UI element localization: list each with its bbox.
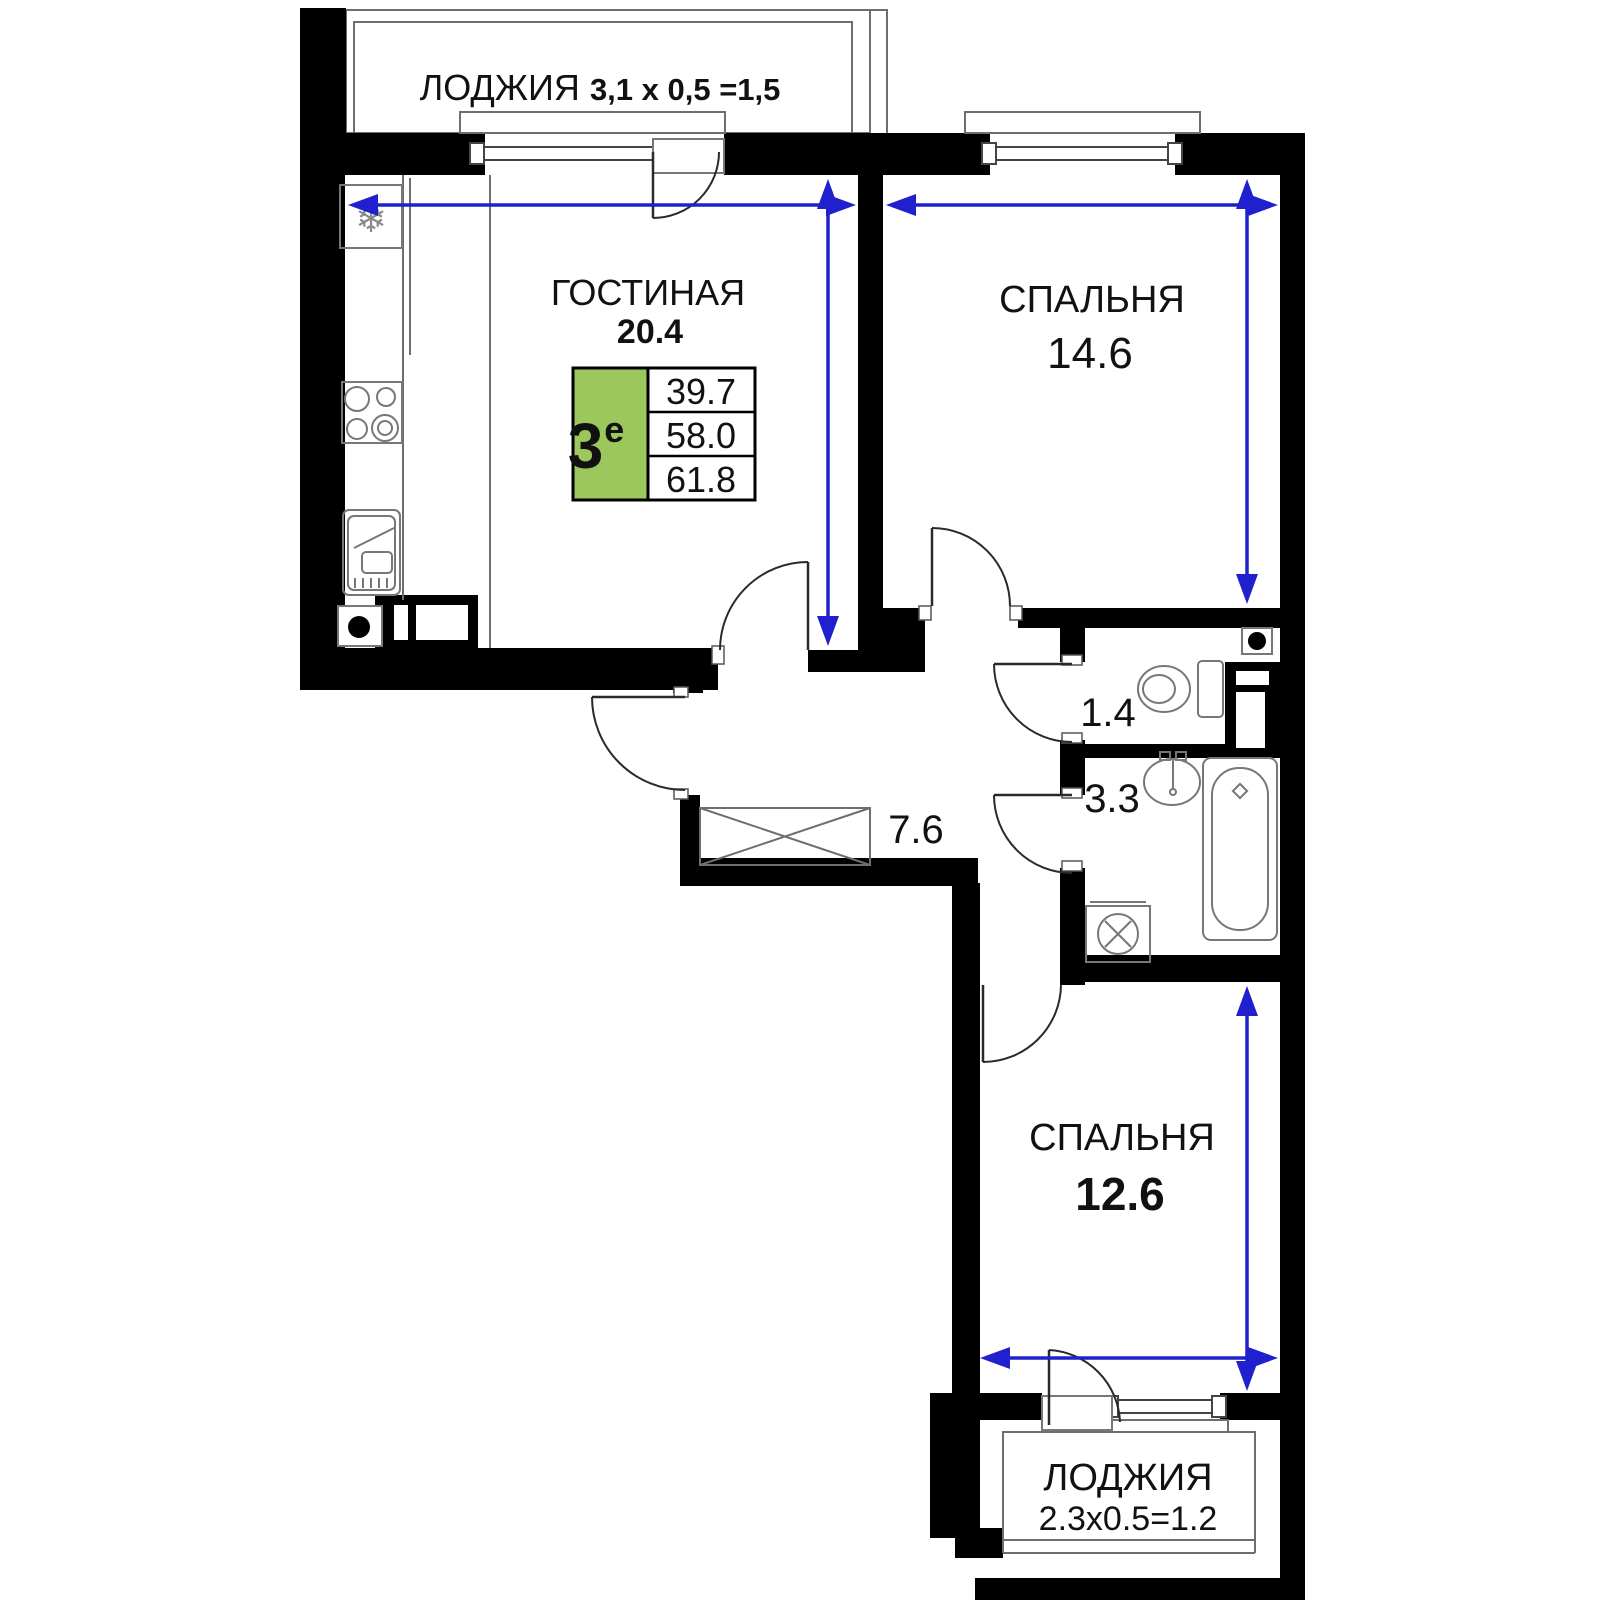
living-room-area: 20.4 xyxy=(617,313,683,351)
wc-duct-shaft xyxy=(1225,662,1280,755)
wc-door xyxy=(994,655,1082,743)
bath-area: 3.3 xyxy=(1084,777,1140,821)
dimension-arrow-bedroom1-depth xyxy=(1236,179,1258,604)
wc-area: 1.4 xyxy=(1080,691,1136,735)
bedroom1-label: СПАЛЬНЯ xyxy=(999,279,1185,321)
bathtub-icon xyxy=(1203,758,1277,940)
floor-plan-canvas: ❄ xyxy=(0,0,1600,1600)
toilet-icon xyxy=(1138,661,1223,717)
wc-vent-icon xyxy=(1242,628,1272,654)
kitchen-vent-icon xyxy=(338,606,382,646)
badge-area-total: 61.8 xyxy=(666,459,736,500)
badge-area-main: 58.0 xyxy=(666,415,736,456)
living-room-label: ГОСТИНАЯ xyxy=(551,272,745,313)
floor-plan: ❄ xyxy=(0,0,1600,1600)
dimension-arrow-bedroom1-width xyxy=(886,194,1278,216)
dimension-arrow-living-width xyxy=(348,194,856,216)
kitchen-duct-shaft xyxy=(375,595,478,648)
bath-door xyxy=(994,788,1082,873)
hall-area: 7.6 xyxy=(888,808,944,852)
bedroom1-door xyxy=(919,528,1022,620)
dimension-arrow-bedroom2-depth xyxy=(1236,986,1258,1391)
bedroom2-balcony-door xyxy=(1042,1350,1120,1430)
loggia-top-label: ЛОДЖИЯ3,1 х 0,5 =1,5 xyxy=(420,67,781,108)
badge-area-living: 39.7 xyxy=(666,371,736,412)
loggia-bottom-dims: 2.3х0.5=1.2 xyxy=(1039,1500,1218,1538)
room-labels: ЛОДЖИЯ3,1 х 0,5 =1,5 ГОСТИНАЯ 20.4 СПАЛЬ… xyxy=(420,67,1218,1538)
dimension-arrow-living-depth xyxy=(817,179,839,646)
bedroom1-area: 14.6 xyxy=(1047,329,1133,378)
bedroom1-window xyxy=(965,112,1200,164)
kitchen-counter xyxy=(403,175,490,648)
living-room-door xyxy=(712,562,808,664)
kitchen-sink-icon xyxy=(343,510,400,595)
washing-machine-icon xyxy=(1086,902,1150,962)
bedroom2-label: СПАЛЬНЯ xyxy=(1029,1117,1215,1159)
stove-icon xyxy=(342,382,402,443)
loggia-bottom-label: ЛОДЖИЯ xyxy=(1043,1457,1212,1499)
wardrobe-symbol xyxy=(700,808,870,865)
washbasin-icon xyxy=(1144,752,1200,805)
dimension-arrow-bedroom2-width xyxy=(980,1347,1278,1369)
bedroom2-door xyxy=(983,985,1061,1062)
walls xyxy=(300,8,1305,1600)
bedroom2-area: 12.6 xyxy=(1075,1168,1165,1220)
entry-door xyxy=(592,687,688,799)
fridge-icon: ❄ xyxy=(340,185,402,248)
unit-badge: 3е 39.7 58.0 61.8 xyxy=(568,368,755,500)
